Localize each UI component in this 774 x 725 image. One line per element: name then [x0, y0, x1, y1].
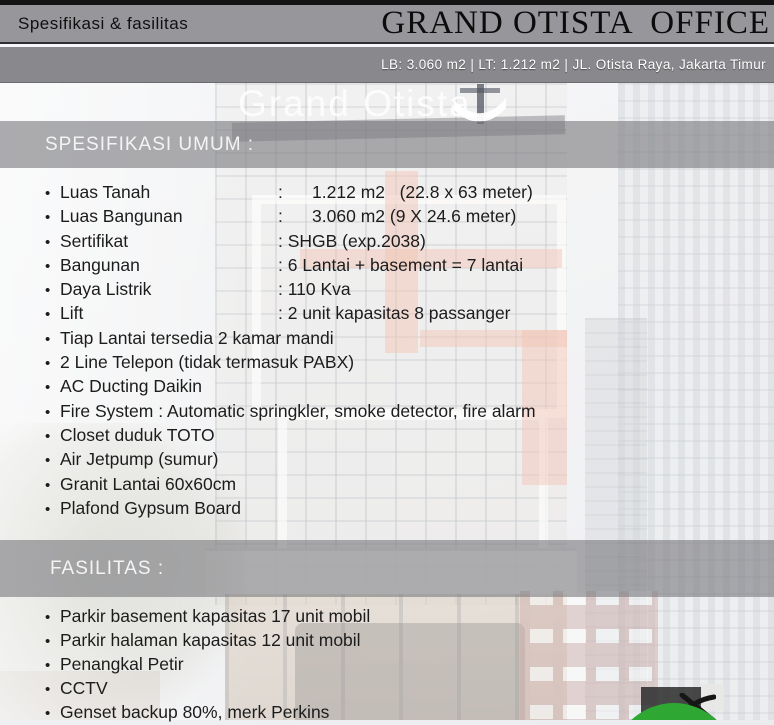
- bullet-icon: •: [45, 450, 60, 472]
- list-item: •Bangunan: 6 Lantai + basement = 7 lanta…: [45, 254, 765, 278]
- bullet-icon: •: [45, 304, 60, 326]
- bullet-icon: •: [45, 702, 60, 725]
- bullet-icon: •: [45, 353, 60, 375]
- bullet-icon: •: [45, 377, 60, 399]
- bullet-icon: •: [45, 426, 60, 448]
- specifications-section-header: SPESIFIKASI UMUM :: [0, 121, 774, 168]
- list-item: •Luas Tanah: 1.212 m2 (22.8 x 63 meter): [45, 181, 765, 205]
- bullet-icon: •: [45, 475, 60, 497]
- page-title: GRAND OTISTA OFFICE: [381, 5, 770, 42]
- list-item: •Tiap Lantai tersedia 2 kamar mandi: [45, 327, 765, 351]
- list-item: •Fire System : Automatic springkler, smo…: [45, 400, 765, 424]
- building-sign-text: Grand Otista: [238, 83, 472, 125]
- list-item: •Lift: 2 unit kapasitas 8 passanger: [45, 302, 765, 326]
- specifications-list: •Luas Tanah: 1.212 m2 (22.8 x 63 meter) …: [45, 181, 765, 521]
- bullet-icon: •: [45, 207, 60, 229]
- list-item: •Granit Lantai 60x60cm: [45, 473, 765, 497]
- bullet-icon: •: [45, 654, 60, 677]
- list-item: •Penangkal Petir: [45, 653, 765, 677]
- list-item: •Closet duduk TOTO: [45, 424, 765, 448]
- bullet-icon: •: [45, 329, 60, 351]
- list-item: •Air Jetpump (sumur): [45, 448, 765, 472]
- list-item: •2 Line Telepon (tidak termasuk PABX): [45, 351, 765, 375]
- list-item: •AC Ducting Daikin: [45, 375, 765, 399]
- specifications-heading: SPESIFIKASI UMUM :: [45, 134, 254, 156]
- list-item: •Parkir halaman kapasitas 12 unit mobil: [45, 629, 765, 653]
- list-item: •Daya Listrik: 110 Kva: [45, 278, 765, 302]
- list-item: •Parkir basement kapasitas 17 unit mobil: [45, 605, 765, 629]
- list-item: •Genset backup 80%, merk Perkins: [45, 701, 765, 725]
- property-info-bar: LB: 3.060 m2 | LT: 1.212 m2 | JL. Otista…: [0, 47, 774, 83]
- list-item: •CCTV: [45, 677, 765, 701]
- bullet-icon: •: [45, 232, 60, 254]
- facilities-section-header: FASILITAS :: [0, 540, 774, 597]
- bullet-icon: •: [45, 499, 60, 521]
- facilities-heading: FASILITAS :: [50, 558, 164, 580]
- bullet-icon: •: [45, 678, 60, 701]
- bullet-icon: •: [45, 402, 60, 424]
- bullet-icon: •: [45, 256, 60, 278]
- header-bar: Spesifikasi & fasilitas GRAND OTISTA OFF…: [0, 5, 774, 44]
- list-item: •Plafond Gypsum Board: [45, 497, 765, 521]
- bullet-icon: •: [45, 630, 60, 653]
- bullet-icon: •: [45, 606, 60, 629]
- list-item: •Sertifikat: SHGB (exp.2038): [45, 230, 765, 254]
- list-item: •Luas Bangunan: 3.060 m2 (9 X 24.6 meter…: [45, 205, 765, 229]
- facilities-list: •Parkir basement kapasitas 17 unit mobil…: [45, 605, 765, 725]
- bullet-icon: •: [45, 280, 60, 302]
- bullet-icon: •: [45, 183, 60, 205]
- brochure-page: { "header": { "left_title": "Spesifikasi…: [0, 0, 774, 720]
- page-subtitle: Spesifikasi & fasilitas: [18, 14, 188, 34]
